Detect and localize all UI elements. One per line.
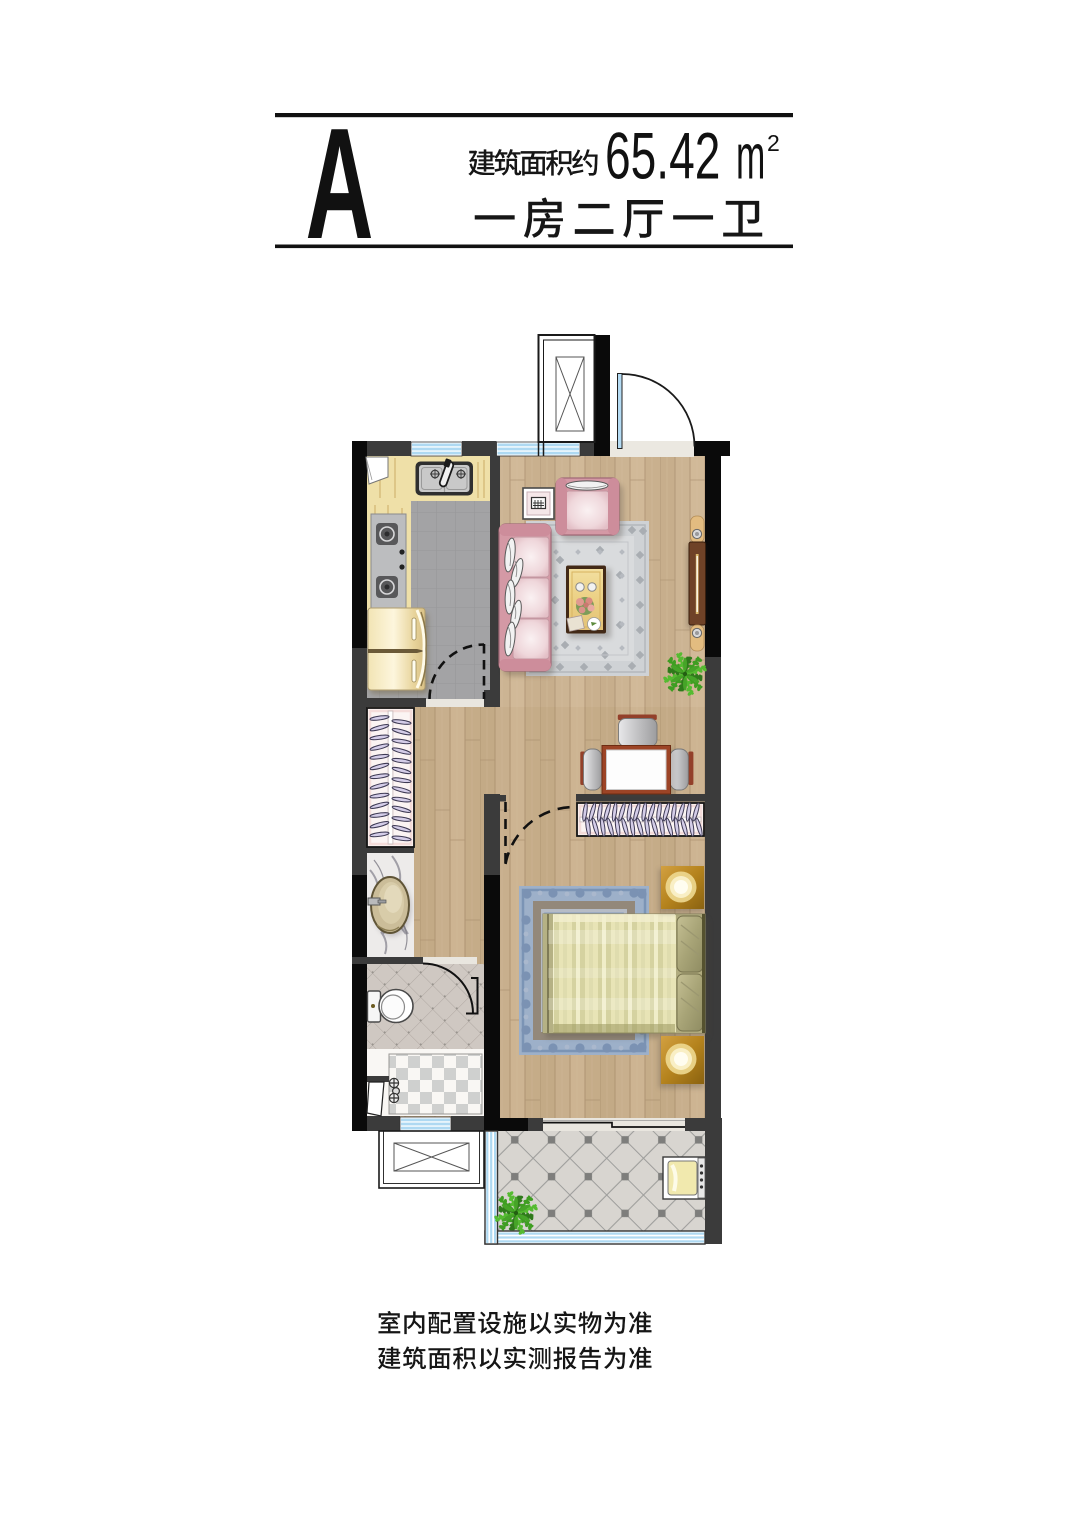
svg-text:65.42: 65.42 — [605, 121, 720, 194]
svg-text:m: m — [736, 120, 765, 192]
svg-text:2: 2 — [767, 130, 780, 156]
